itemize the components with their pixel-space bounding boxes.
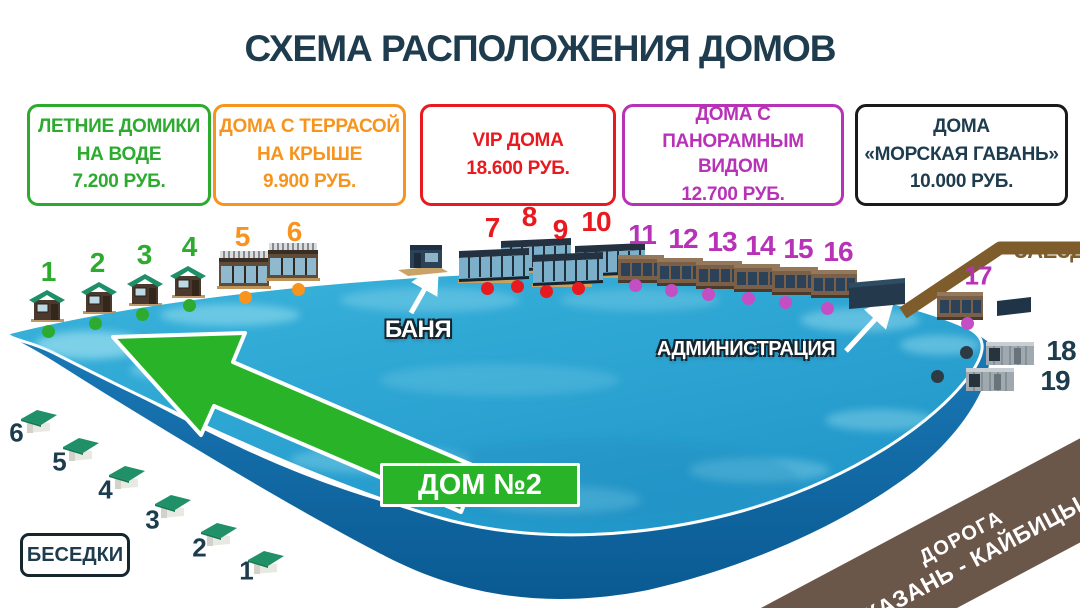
gazebo-4 bbox=[108, 464, 146, 492]
banya-label: БАНЯ bbox=[383, 316, 453, 344]
scheme-canvas: СХЕМА РАСПОЛОЖЕНИЯ ДОМОВ ЛЕТНИЕ ДОМИКИНА… bbox=[0, 0, 1080, 608]
legend-line: НА КРЫШЕ bbox=[216, 143, 403, 168]
spot-dot bbox=[961, 317, 974, 330]
number-label-1: 1 bbox=[41, 256, 56, 288]
house-4 bbox=[169, 264, 207, 300]
spot-dot bbox=[239, 291, 252, 304]
dom2-label-box: ДОМ №2 bbox=[380, 463, 580, 507]
legend-line: 10.000 РУБ. bbox=[858, 170, 1065, 195]
legend-line: НА ВОДЕ bbox=[30, 143, 208, 168]
legend-panoramic-houses: ДОМА СПАНОРАМНЫМ ВИДОМ12.700 РУБ. bbox=[622, 104, 844, 206]
number-label-12: 12 bbox=[668, 223, 697, 255]
legend-line: 9.900 РУБ. bbox=[216, 170, 403, 195]
page-title: СХЕМА РАСПОЛОЖЕНИЯ ДОМОВ bbox=[0, 28, 1080, 70]
number-label-1: 1 bbox=[239, 556, 252, 587]
spot-dot bbox=[665, 284, 678, 297]
legend-line: ДОМА С ТЕРРАСОЙ bbox=[216, 115, 403, 140]
house-3 bbox=[126, 272, 164, 308]
number-label-14: 14 bbox=[745, 230, 774, 262]
house-2 bbox=[80, 280, 118, 316]
legend-sea-harbor-houses: ДОМА«МОРСКАЯ ГАВАНЬ»10.000 РУБ. bbox=[855, 104, 1068, 206]
number-label-19: 19 bbox=[1040, 365, 1069, 397]
spot-dot bbox=[42, 325, 55, 338]
number-label-11: 11 bbox=[628, 219, 656, 251]
gazebos-label-box: БЕСЕДКИ bbox=[20, 533, 130, 577]
number-label-6: 6 bbox=[9, 418, 22, 449]
house-6 bbox=[266, 242, 320, 284]
legend-line: ДОМА bbox=[858, 115, 1065, 140]
house-9 bbox=[532, 250, 604, 288]
spot-dot bbox=[183, 299, 196, 312]
legend-summer-houses: ЛЕТНИЕ ДОМИКИНА ВОДЕ7.200 РУБ. bbox=[27, 104, 211, 206]
administration-label: АДМИНИСТРАЦИЯ bbox=[646, 338, 846, 361]
house-5 bbox=[217, 250, 271, 292]
number-label-4: 4 bbox=[182, 231, 197, 263]
number-label-2: 2 bbox=[90, 247, 105, 279]
legend-line: 18.600 РУБ. bbox=[423, 157, 613, 182]
spot-dot bbox=[511, 280, 524, 293]
legend-terrace-houses: ДОМА С ТЕРРАСОЙНА КРЫШЕ9.900 РУБ. bbox=[213, 104, 406, 206]
number-label-5: 5 bbox=[235, 221, 250, 253]
legend-line: ДОМА С bbox=[625, 103, 841, 128]
house-18 bbox=[984, 340, 1036, 368]
number-label-2: 2 bbox=[192, 533, 205, 564]
spot-dot bbox=[136, 308, 149, 321]
number-label-16: 16 bbox=[823, 236, 852, 268]
legend-line: 12.700 РУБ. bbox=[625, 183, 841, 208]
spot-dot bbox=[540, 285, 553, 298]
spot-dot bbox=[481, 282, 494, 295]
spot-dot bbox=[702, 288, 715, 301]
spot-dot bbox=[960, 346, 973, 359]
number-label-18: 18 bbox=[1046, 335, 1075, 367]
legend-line: ПАНОРАМНЫМ ВИДОМ bbox=[625, 130, 841, 179]
number-label-10: 10 bbox=[581, 206, 610, 238]
service-building bbox=[996, 296, 1032, 318]
number-label-7: 7 bbox=[485, 212, 500, 244]
spot-dot bbox=[931, 370, 944, 383]
number-label-15: 15 bbox=[783, 233, 812, 265]
number-label-17: 17 bbox=[965, 261, 992, 292]
house-1 bbox=[28, 288, 66, 324]
number-label-13: 13 bbox=[707, 226, 736, 258]
gazebo-6 bbox=[20, 408, 58, 436]
legend-line: VIP ДОМА bbox=[423, 129, 613, 154]
spot-dot bbox=[292, 283, 305, 296]
number-label-9: 9 bbox=[553, 214, 568, 246]
spot-dot bbox=[821, 302, 834, 315]
spot-dot bbox=[779, 296, 792, 309]
spot-dot bbox=[572, 282, 585, 295]
legend-line: 7.200 РУБ. bbox=[30, 170, 208, 195]
gazebo-5 bbox=[62, 436, 100, 464]
legend-line: «МОРСКАЯ ГАВАНЬ» bbox=[858, 143, 1065, 168]
number-label-4: 4 bbox=[98, 475, 111, 506]
spot-dot bbox=[89, 317, 102, 330]
number-label-6: 6 bbox=[287, 216, 302, 248]
house-17 bbox=[936, 290, 984, 322]
house-7 bbox=[458, 246, 530, 284]
number-label-3: 3 bbox=[137, 239, 152, 271]
legend-line: ЛЕТНИЕ ДОМИКИ bbox=[30, 115, 208, 140]
number-label-5: 5 bbox=[52, 447, 65, 478]
number-label-3: 3 bbox=[145, 505, 158, 536]
entry-label: ЗАЕЗД bbox=[1014, 238, 1080, 264]
gazebo-3 bbox=[154, 493, 192, 521]
spot-dot bbox=[629, 279, 642, 292]
legend-vip-houses: VIP ДОМА18.600 РУБ. bbox=[420, 104, 616, 206]
house-19 bbox=[964, 366, 1016, 394]
banya-building bbox=[398, 242, 448, 276]
administration-building bbox=[848, 276, 906, 310]
spot-dot bbox=[742, 292, 755, 305]
